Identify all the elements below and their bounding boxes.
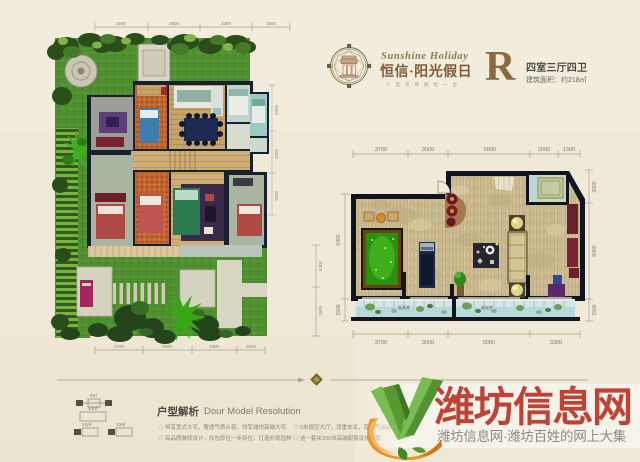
svg-text:Dour Model Resolution: Dour Model Resolution <box>204 406 301 417</box>
svg-text:3000: 3000 <box>422 147 434 153</box>
svg-text:10㎡: 10㎡ <box>88 405 98 411</box>
svg-text:3700: 3700 <box>375 147 387 153</box>
svg-text:12㎡: 12㎡ <box>82 421 92 427</box>
svg-text:5000: 5000 <box>484 147 496 153</box>
svg-text:2000: 2000 <box>274 148 279 159</box>
svg-text:5000: 5000 <box>483 340 495 346</box>
svg-text:6000: 6000 <box>592 245 598 256</box>
svg-text:2800: 2800 <box>169 21 180 26</box>
svg-text:2000: 2000 <box>538 147 550 153</box>
svg-text:潍坊信息网·潍坊百姓的网上大集: 潍坊信息网·潍坊百姓的网上大集 <box>437 428 627 444</box>
svg-text:恒信·阳光假日: 恒信·阳光假日 <box>380 63 472 80</box>
svg-text:3300: 3300 <box>209 344 220 349</box>
svg-text:1500: 1500 <box>336 304 342 315</box>
svg-text:2800: 2800 <box>246 344 257 349</box>
svg-text:5000: 5000 <box>274 104 279 115</box>
svg-text:R: R <box>485 44 516 90</box>
svg-text:2600: 2600 <box>162 344 173 349</box>
svg-text:3700: 3700 <box>375 340 387 346</box>
svg-text:户型央尊献给一邑: 户型央尊献给一邑 <box>386 81 462 88</box>
svg-text:3300: 3300 <box>550 340 562 346</box>
svg-text:Sunshine Holiday: Sunshine Holiday <box>381 51 469 62</box>
svg-text:1300: 1300 <box>563 147 575 153</box>
svg-text:◇ 高品质装修设计，拎包即住一步到位，打造外观园林: ◇ 高品质装修设计，拎包即住一步到位，打造外观园林 <box>158 434 292 442</box>
svg-text:3000: 3000 <box>422 340 434 346</box>
svg-text:13㎡: 13㎡ <box>116 421 126 427</box>
svg-text:6400: 6400 <box>318 260 323 271</box>
svg-text:建筑面积：约218㎡: 建筑面积：约218㎡ <box>526 75 587 84</box>
svg-text:潍坊信息网: 潍坊信息网 <box>434 384 632 430</box>
svg-text:采光井: 采光井 <box>398 304 410 310</box>
svg-text:采光井: 采光井 <box>481 304 493 310</box>
svg-text:9㎡: 9㎡ <box>90 392 98 398</box>
svg-text:户型解析: 户型解析 <box>156 405 199 418</box>
svg-text:四室三厅四卫: 四室三厅四卫 <box>526 61 587 74</box>
svg-text:◇ 恒享宽式大宅，奢适气质从容，领军潍坊高端大宅: ◇ 恒享宽式大宅，奢适气质从容，领军潍坊高端大宅 <box>158 423 287 431</box>
svg-text:1500: 1500 <box>266 21 277 26</box>
svg-text:6400: 6400 <box>336 234 342 245</box>
svg-text:1500: 1500 <box>318 305 323 316</box>
svg-text:2700: 2700 <box>114 344 125 349</box>
svg-text:1500: 1500 <box>592 304 598 315</box>
svg-text:3500: 3500 <box>116 21 127 26</box>
svg-text:2000: 2000 <box>592 181 598 192</box>
svg-text:3300: 3300 <box>221 21 232 26</box>
svg-text:3000: 3000 <box>274 190 279 201</box>
